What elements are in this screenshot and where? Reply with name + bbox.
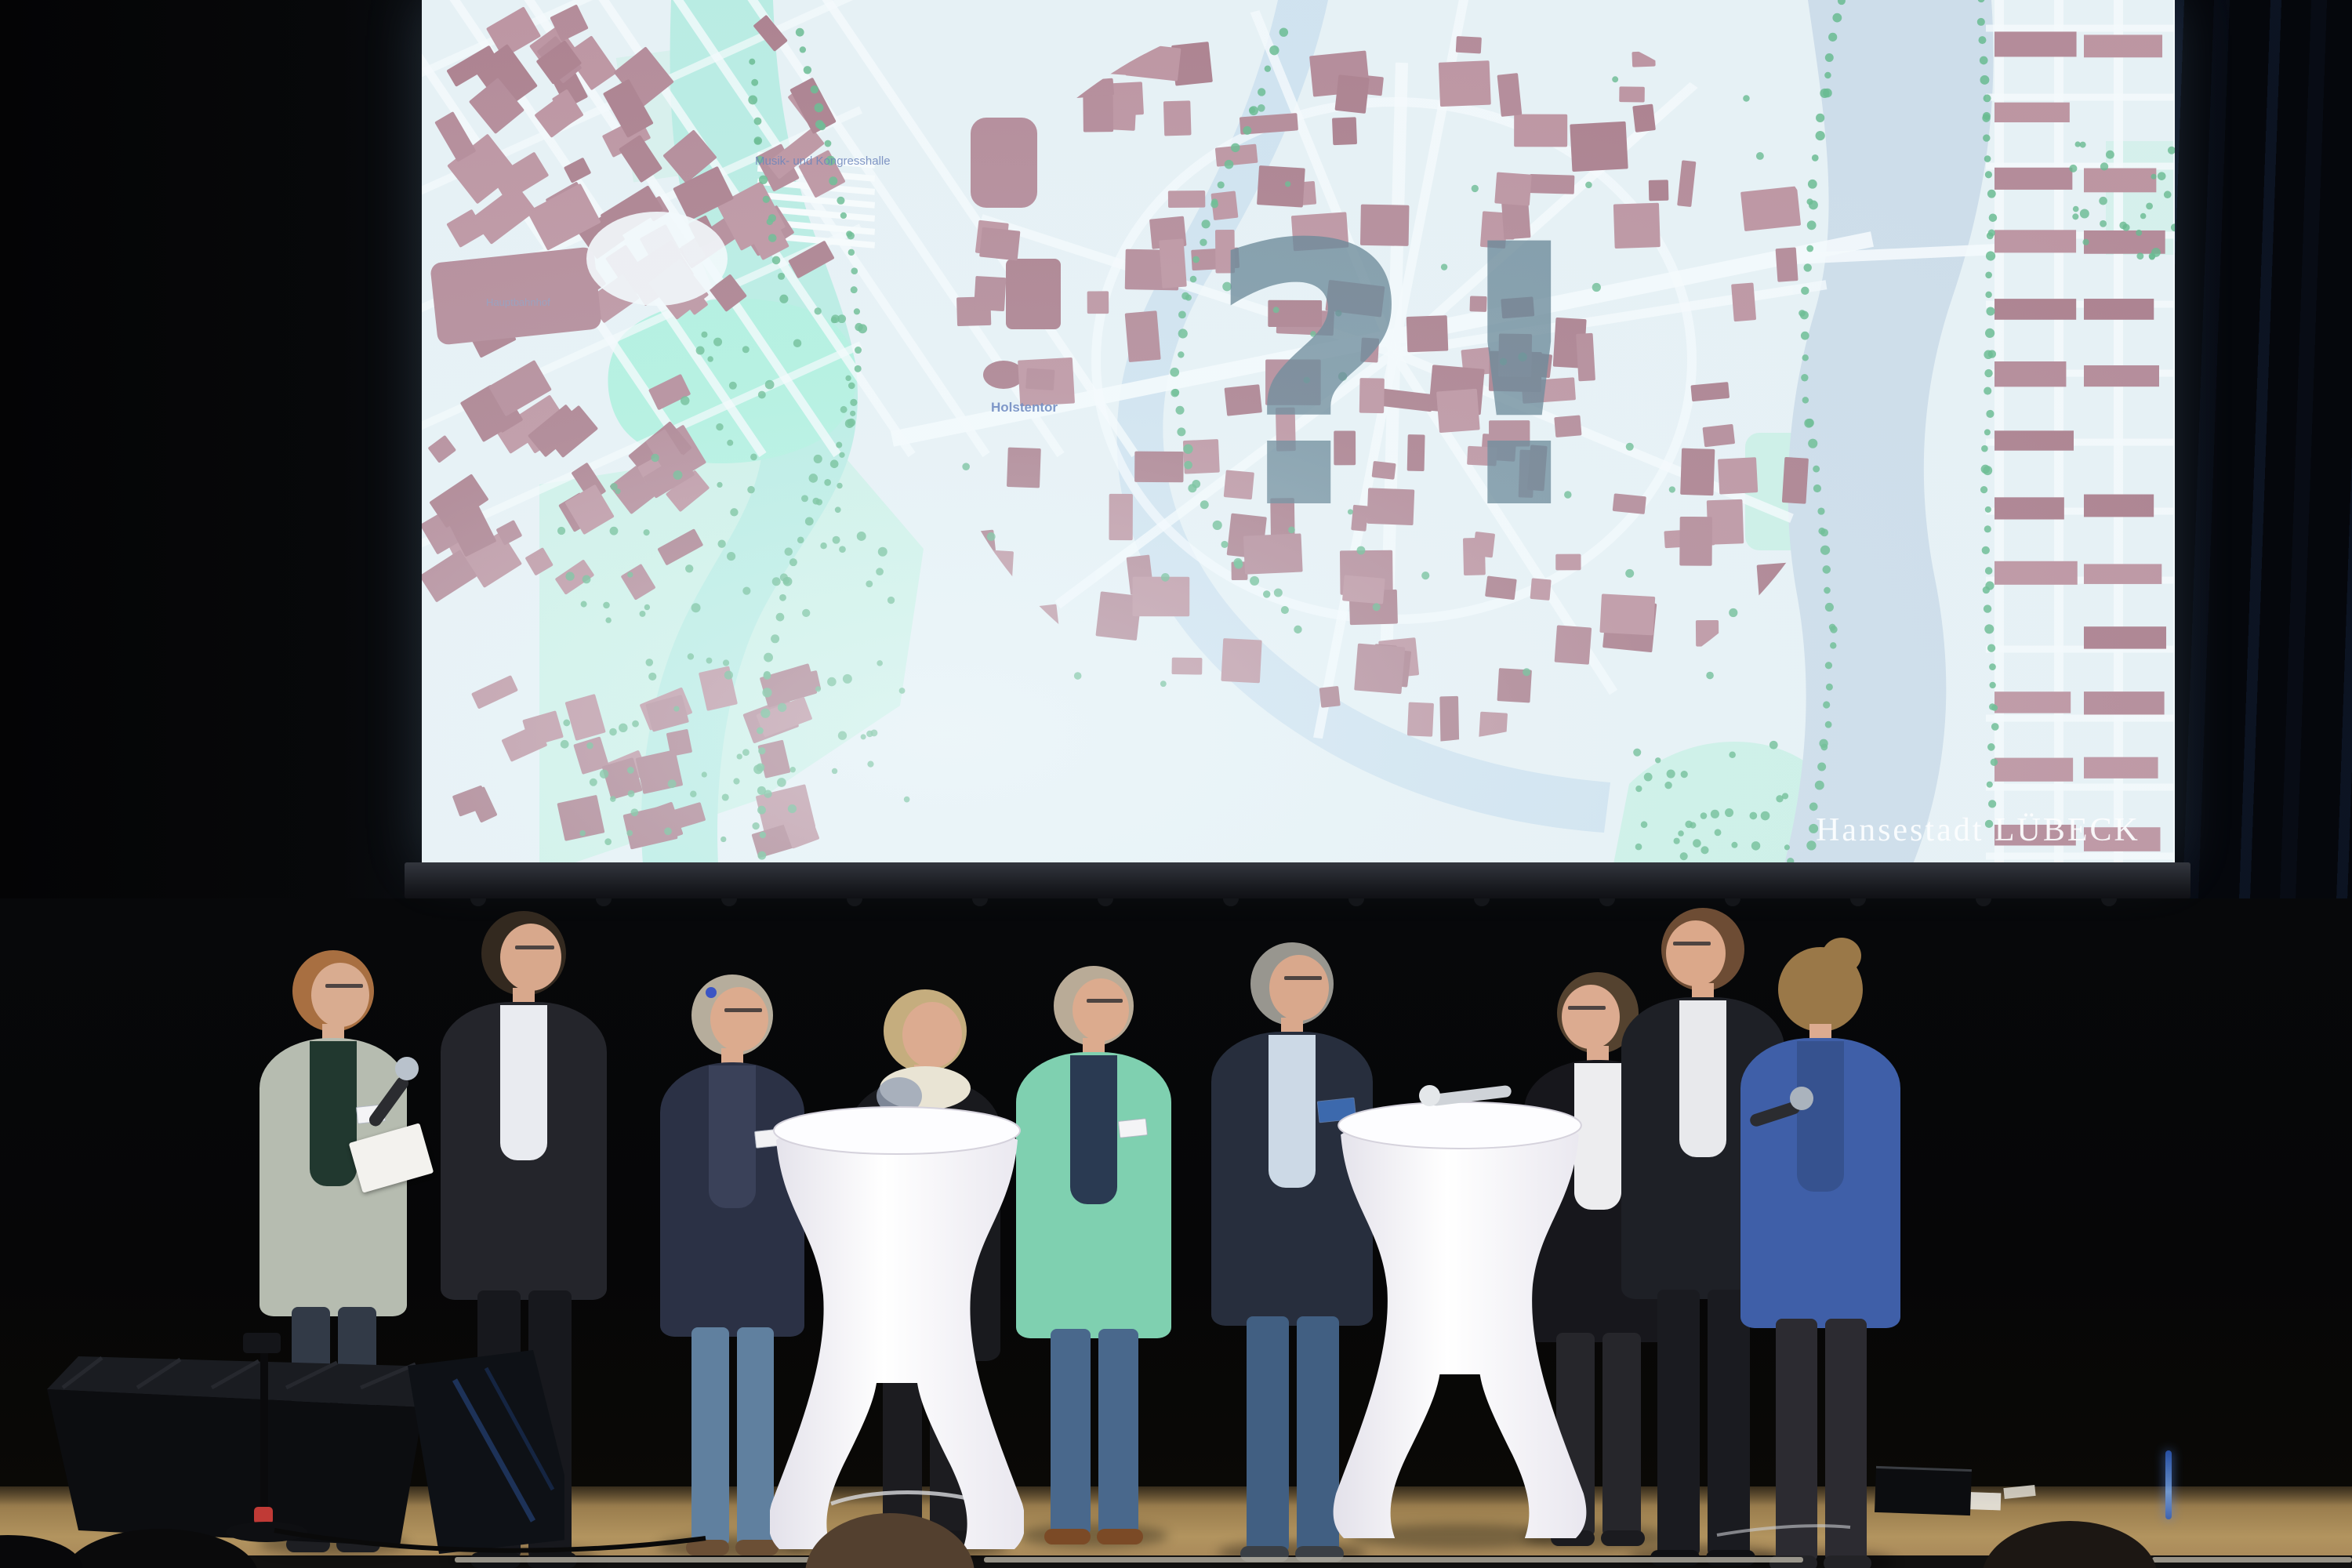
audience-layer [0,0,2352,1568]
audience-head [63,1529,259,1568]
audience-head [1982,1521,2158,1568]
audience-head [0,1535,82,1568]
audience-head [805,1513,975,1568]
event-photo: Musik- und Kongresshalle Hauptbahnhof Ho… [0,0,2352,1568]
